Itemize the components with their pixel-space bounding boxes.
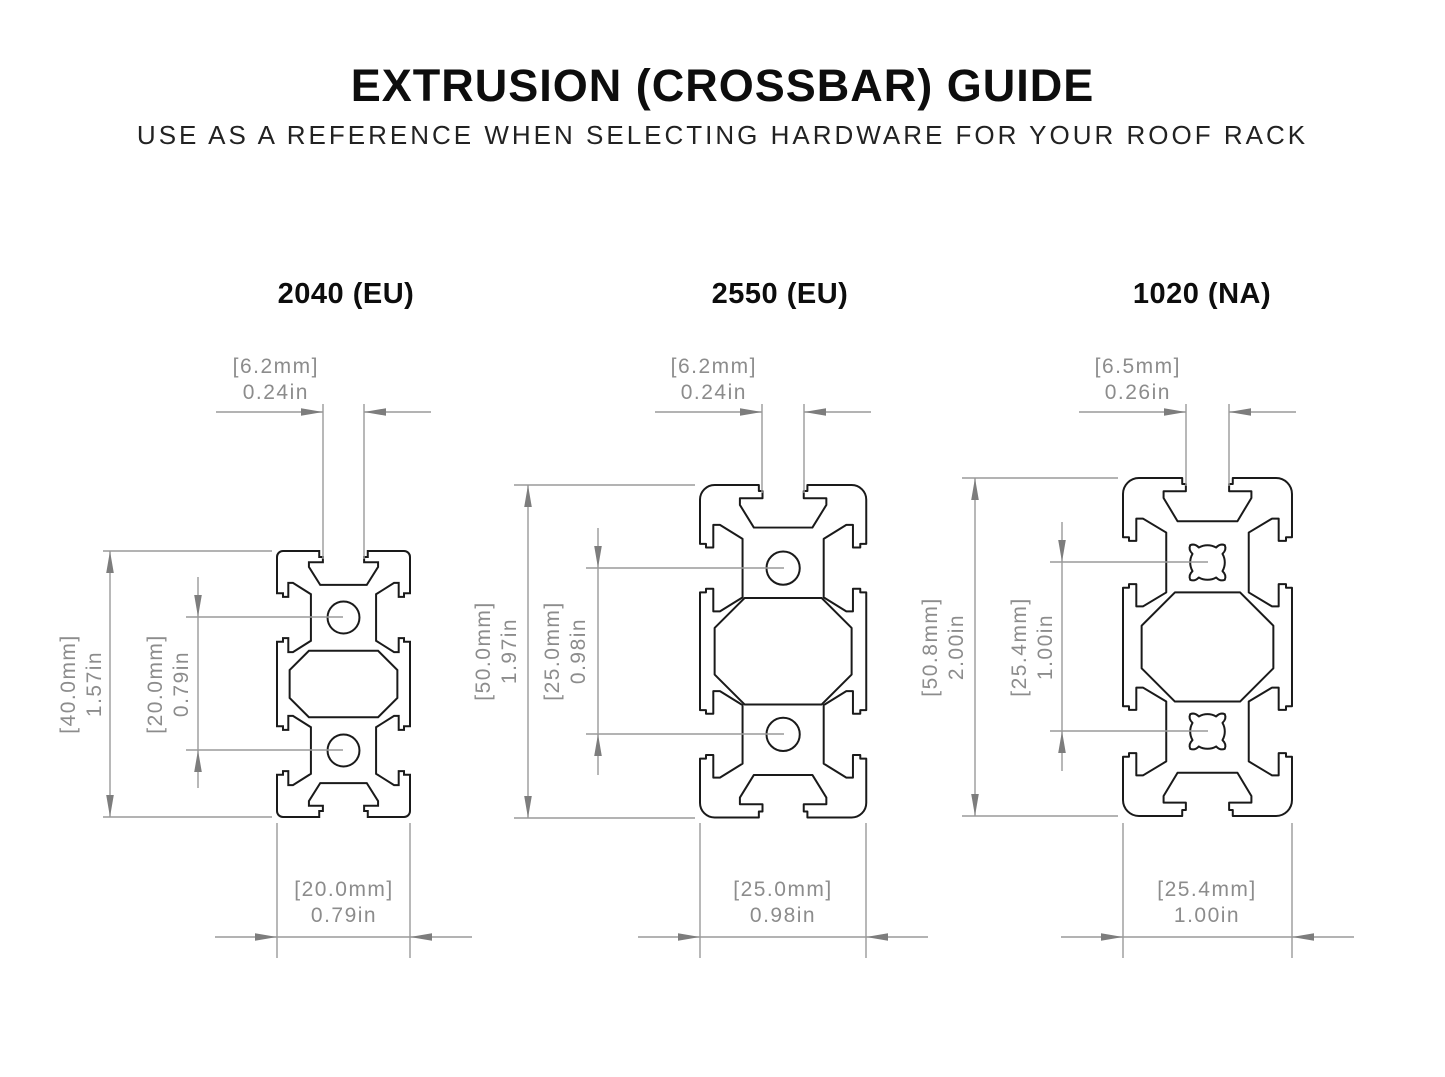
extrusion-outline-2550 xyxy=(700,485,866,818)
dim-slot-width-lines-1020 xyxy=(1079,404,1296,486)
extrusion-outline-1020 xyxy=(1123,478,1292,816)
extrusion-outline-2040 xyxy=(277,551,410,817)
dim-width-label-2550: [25.0mm] 0.98in xyxy=(733,877,833,929)
dim-hole-spacing-label-2550: [25.0mm] 0.98in xyxy=(540,601,592,701)
dim-width-label-1020: [25.4mm] 1.00in xyxy=(1157,877,1257,929)
dim-hole-spacing-label-1020: [25.4mm] 1.00in xyxy=(1007,597,1059,697)
dimension-lines xyxy=(103,404,1354,958)
dim-slot-width-label-2040: [6.2mm] 0.24in xyxy=(233,354,319,406)
center-cavity-2550 xyxy=(715,598,852,704)
dim-hole-spacing-lines-2550 xyxy=(586,528,784,775)
dim-height-label-1020: [50.8mm] 2.00in xyxy=(918,597,970,697)
dim-width-label-2040: [20.0mm] 0.79in xyxy=(294,877,394,929)
extrusion-guide-page: EXTRUSION (CROSSBAR) GUIDE USE AS A REFE… xyxy=(0,0,1445,1077)
dim-hole-spacing-lines-2040 xyxy=(186,577,343,788)
dim-slot-width-label-2550: [6.2mm] 0.24in xyxy=(671,354,757,406)
profile-drawing-2550 xyxy=(700,485,866,818)
dim-height-label-2550: [50.0mm] 1.97in xyxy=(471,601,523,701)
dim-hole-spacing-label-2040: [20.0mm] 0.79in xyxy=(143,634,195,734)
profile-drawing-2040 xyxy=(277,551,410,817)
profile-drawing-1020 xyxy=(1123,478,1292,816)
dim-slot-width-lines-2550 xyxy=(655,404,871,493)
center-cavity-1020 xyxy=(1142,592,1274,701)
dim-slot-width-label-1020: [6.5mm] 0.26in xyxy=(1095,354,1181,406)
dim-slot-width-lines-2040 xyxy=(216,404,431,559)
center-cavity-2040 xyxy=(290,651,398,718)
dim-hole-spacing-lines-1020 xyxy=(1050,522,1208,771)
dim-height-label-2040: [40.0mm] 1.57in xyxy=(56,634,108,734)
